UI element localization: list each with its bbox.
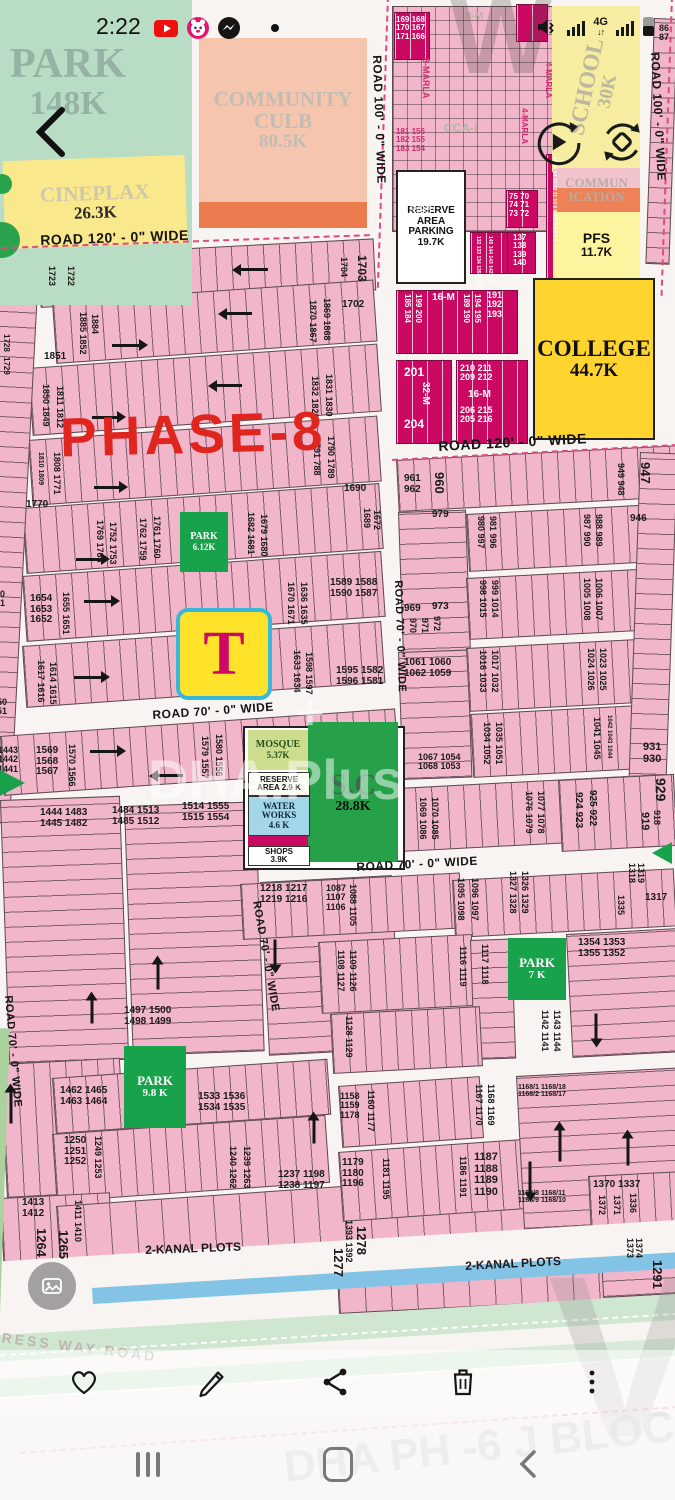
plot-label: 16-M [432,293,455,304]
plot-label: 972 [432,616,441,631]
plot-label: 1240 1262 [228,1146,237,1189]
edit-button[interactable] [191,1362,231,1402]
corner-marker [652,842,672,864]
mute-vibrate-icon [537,17,559,37]
direction-arrow [226,312,252,315]
block-size-label: 30K [595,73,622,110]
block-size-label: 80.5K [259,132,307,152]
block-park-9-8k: PARK9.8 K [124,1046,186,1128]
plot-label: 1869 1868 [322,298,331,341]
recents-button[interactable] [126,1444,170,1484]
plot-label: 1703 [355,255,368,282]
plot-label: 1265 [56,1230,70,1259]
plot-label: 1372 [597,1195,606,1215]
direction-arrow [76,558,102,561]
plot-label: 1702 [342,300,364,311]
plot-label: 1655 1651 [61,592,70,635]
plot-label: 1770 [26,500,48,511]
plot-label: 1636 1635 [299,582,308,625]
plot-label: 1016 1033 [478,650,487,693]
plot-label: 1319 1318 [626,863,645,893]
block-label: PARK [190,532,218,543]
plot-label: 1327 1328 [508,871,517,914]
plot-label: 947 [638,462,652,484]
plot-label: 1087 1107 1106 [326,884,346,912]
plot-label: 1096 1097 [470,878,479,921]
direction-arrow [112,344,140,347]
notification-icons [154,17,279,39]
block-size-label: 19.7K [418,238,445,249]
block-shops: SHOPS 3.9K [248,846,310,866]
recents-icon [136,1452,160,1477]
plot-label: 1533 1536 1534 1535 [198,1092,245,1113]
direction-arrow [216,384,242,387]
plot-label: 1128 1129 [344,1016,353,1058]
plot-label: 1614 1615 [48,662,57,705]
share-icon [318,1365,352,1399]
block-park-7k: PARK7 K [508,938,566,1000]
plot-label: 1413 1412 [22,1198,44,1219]
plot-label: CCA-I [444,122,477,135]
map-canvas[interactable]: PHASE-8 T PARK148KCOMMUNITY CULB80.5KCIN… [0,0,675,1500]
block-communication: COMMUN ICATION [553,168,640,212]
home-button[interactable] [316,1444,360,1484]
foodpanda-icon [187,17,209,39]
plot-label: 1142 1141 [540,1010,549,1052]
plot-label: 1108 1127 [336,950,345,992]
plot-label: 1704 [339,257,348,277]
plot-label: 1462 1465 1463 1464 [60,1086,107,1107]
plot-label: 987 990 [582,514,591,547]
battery-icon [642,16,655,37]
plot-strip [338,1139,526,1222]
plot-label: 1070 1085 [430,797,439,840]
plot-label: 1884 [90,314,99,334]
direction-arrow [274,940,277,966]
system-icons: 4G↓↑ [537,16,655,37]
block-label: PARK [137,1074,173,1088]
block-size-label: 26.3K [74,203,118,222]
plot-label: 1167 1170 [474,1084,483,1126]
image-icon [39,1273,65,1299]
block-size-label: 7 K [529,970,546,982]
plot-label: 931 930 [643,742,661,765]
plot-label: 1116 1119 [458,946,467,987]
plot-label: 1239 1263 [242,1146,251,1189]
messenger-icon [218,17,240,39]
plot-label: 961 962 [404,474,421,495]
youtube-icon [154,20,178,37]
plot-label: 147 130 146 131 [410,206,432,219]
plot-label: 32-M [420,382,431,405]
plot-label: 1237 1198 1238 1197 [278,1170,325,1191]
plot-label: 1264 [34,1228,48,1257]
plot-label: 1762 1759 [138,518,147,561]
block-size-label: 11.7K [581,246,612,259]
plot-label: 1750 1751 [0,698,7,717]
plot-label: 1250 1251 1252 [64,1136,86,1168]
block-community-club-strip [199,202,367,228]
block-shops-strip [248,836,308,846]
block-label: COMMUN ICATION [565,176,628,203]
plot-label: 1728 [2,334,10,352]
block-size-label: 44.7K [570,361,618,381]
rotate-screen-icon[interactable] [598,118,646,166]
kebab-menu-icon [575,1365,609,1399]
back-button[interactable] [506,1444,550,1484]
t-location-marker[interactable]: T [176,608,272,700]
plot-label: 191 192 193 [487,291,502,319]
network-type: 4G↓↑ [593,17,608,37]
plot-label: 206 215 205 216 [460,406,493,425]
plot-label: 1042 1043 1044 [606,715,612,758]
plot-label: 1187 1188 1189 1190 [474,1152,498,1198]
corner-marker [0,770,25,796]
block-park-6-12k: PARK6.12K [180,512,228,572]
plot-label: 980 997 [476,516,485,549]
block-label: COLLEGE [537,337,651,361]
plot-label: 979 [432,510,449,521]
plot-label: 1370 1337 [593,1180,640,1191]
home-icon [323,1447,353,1482]
plot-label: 8-MARLA [421,58,430,99]
plot-label: 999 1014 [490,580,499,618]
plot-label: 1569 1568 1567 [36,746,58,778]
plot-label: 1810 1809 [37,452,44,485]
plot-label: 75 70 74 71 73 72 [509,193,529,218]
delete-button[interactable] [443,1362,483,1402]
network-arrows-icon: ↓↑ [597,28,604,37]
trash-icon [446,1365,480,1399]
plot-label: 1067 1054 1068 1053 [418,753,461,772]
block-reserve-parking: RESERVE AREA PARKING19.7K [396,170,466,284]
block-label: PFS [583,231,610,246]
plot-label: 145 144 143 142 141 [487,236,492,283]
plot-label: 16-M [468,390,491,401]
plot-label: 132 133 134 135-M 136 [475,236,480,289]
signal-icon-2 [615,17,635,37]
block-label: SHOPS 3.9K [265,848,293,865]
notification-dot [271,24,279,32]
plot-label: 1723 [47,266,56,286]
plot-label: 1654 1653 1652 [30,594,52,626]
crop-gallery-button[interactable] [28,1262,76,1310]
screen-record-icon[interactable] [534,118,582,166]
plot-label: 1885 1852 [78,312,87,355]
phase-label: PHASE-8 [59,399,327,470]
plot-label: 194 195 [473,294,481,323]
block-college: COLLEGE44.7K [533,278,655,440]
direction-arrow [240,268,268,271]
direction-arrow [529,1162,532,1194]
plot-label: 189 190 [462,294,470,323]
plot-label: 1595 1582 1596 1581 [336,666,383,687]
plot-label: 1181 1195 [381,1158,390,1200]
plot-label: 1005 1008 [582,578,591,621]
plot-label: 1690 [344,484,366,495]
plot-strip [338,1076,484,1148]
direction-arrow [91,1000,94,1024]
plot-strip [0,796,129,1064]
plot-label: 1109 1126 [348,950,357,992]
plot-label: 1006 1007 [594,578,603,621]
plot-label: 1179 1180 1196 [342,1158,364,1190]
block-label: COMMUNITY CULB [214,88,353,132]
block-size-label: 6.12K [193,543,216,552]
plot-label: 1670 1671 [286,582,295,625]
watermark: DHA.Plus [148,752,403,808]
plot-label: 1850 1849 [41,384,50,427]
plot-label: 1017 1032 [490,650,499,693]
plot-label: 946 [630,514,647,525]
plot-label: 981 996 [488,516,497,549]
plot-label: 201 [404,366,424,379]
plot-label: 1218 1217 1219 1216 [260,884,307,905]
plot-label: 973 [432,602,449,613]
plot-label: 1354 1353 1355 1352 [578,938,625,959]
plot-label: 925 922 [587,790,598,826]
plot-label: 1444 1483 1445 1482 [40,808,87,829]
plot-label: 1278 [354,1226,368,1255]
plot-label: 1570 1566 [67,744,76,787]
clock: 2:22 [96,13,141,40]
plot-label: 1023 1025 [598,648,607,691]
plot-label: 1729 [2,357,10,375]
plot-label: 1672 [372,510,381,530]
heart-icon [67,1365,101,1399]
plot-label: 1168 1169 [486,1084,495,1126]
plot-label: 1186 1191 [458,1156,467,1198]
plot-label: 1870 1867 [308,300,317,343]
plot-label: 998 1015 [478,580,487,618]
plot-label: 16 15 14 13 12 11 10 9 8 7 6 5 4 3 2 1 [551,157,556,242]
plot-label: 1336 [628,1193,637,1213]
pencil-icon [194,1365,228,1399]
direction-arrow [84,600,112,603]
block-pfs: PFS11.7K [553,212,640,278]
plot-label: 4-MARLA [520,108,528,144]
plot-label: 1041 1045 [592,717,601,760]
plot-label: 1035 1051 [494,722,503,765]
plot-label: 1061 1060 1062 1059 [404,658,451,679]
plot-label: 924 923 [573,792,584,828]
direction-arrow [559,1130,562,1162]
plot-label: 1076 1079 [524,791,533,834]
plot-label: 918 [652,810,661,825]
block-label: PARK [519,956,555,970]
plot-label: 185 184 [403,294,411,323]
plot-label: 1335 [616,895,625,915]
plot-label: 1808 1771 [52,452,61,495]
plot-label: 1034 1052 [482,722,491,765]
direction-arrow [595,1014,598,1040]
plot-label: 1371 [612,1195,621,1215]
plot-label: 1024 1026 [586,648,595,691]
watermark: + [296,690,324,738]
plot-label: 970 [408,618,417,633]
plot-label: 181 156 182 155 183 154 [396,128,425,153]
plot-label: 1722 [66,266,75,286]
plot-label: 1679 1680 [259,514,268,557]
plot-label: 1168/1 1168/18 1168/2 1168/17 [518,1084,566,1099]
plot-label: 1160 1177 [366,1090,375,1132]
plot-label: 210 211 209 212 [460,364,493,383]
plot-label: 1497 1500 1498 1499 [124,1006,171,1027]
plot-label: 1158 1159 1178 [340,1092,360,1120]
plot-label: 1088 1105 [348,884,357,926]
plot-label: 1249 1253 [93,1136,102,1179]
direction-arrow [10,1092,13,1124]
screen: PHASE-8 T PARK148KCOMMUNITY CULB80.5KCIN… [0,0,675,1500]
direction-arrow [627,1138,630,1166]
plot-label: 1411 1410 [73,1200,82,1242]
direction-arrow [90,750,118,753]
plot-label: 1326 1329 [520,871,529,914]
plot-label: 949 948 [616,463,625,496]
plot-label: 988 989 [594,514,603,547]
plot-label: 1143 1144 [552,1010,561,1052]
back-chevron-button[interactable] [26,102,80,162]
plot-label: 1682 1681 [246,512,255,555]
direction-arrow [74,676,102,679]
plot-label: 199 200 [414,294,422,323]
plot-label: 1617 1616 [36,660,45,703]
plot-label: 1761 1760 [152,516,161,559]
plot-label: 1277 [331,1248,345,1277]
bottom-toolbar [0,1350,675,1416]
direction-arrow [313,1120,316,1144]
plot-label: 1589 1588 1590 1587 [330,578,377,599]
block-size-label: 9.8 K [142,1088,167,1100]
status-bar: 2:22 4G↓↑ [0,0,675,56]
plot-label: 971 [420,618,429,633]
more-button[interactable] [572,1362,612,1402]
navigation-bar [0,1416,675,1500]
plot-label: 1117 1118 [480,944,489,985]
plot-strip [398,510,471,666]
plot-label: 137 138 139 140 [513,234,526,268]
plot-label: 1851 [44,352,66,363]
plot-label: 1095 1098 [456,878,465,921]
signal-icon [566,17,586,37]
plot-label: 204 [404,418,424,431]
plot-label: 1740 1741 [0,590,5,609]
back-icon [515,1448,541,1480]
plot-label: 929 [653,778,668,801]
block-community-club: COMMUNITY CULB80.5K [199,38,367,202]
plot-label: 1317 [645,893,667,904]
plot-label: 919 [638,812,650,830]
favorite-button[interactable] [64,1362,104,1402]
plot-label: 1689 [362,508,371,528]
plot-label: 960 [432,472,446,494]
plot-label: 969 [404,604,421,615]
direction-arrow [157,964,160,990]
share-button[interactable] [315,1362,355,1402]
direction-arrow [94,486,120,489]
plot-label: 1077 1078 [536,791,545,834]
plot-label: 1069 1086 [418,797,427,840]
